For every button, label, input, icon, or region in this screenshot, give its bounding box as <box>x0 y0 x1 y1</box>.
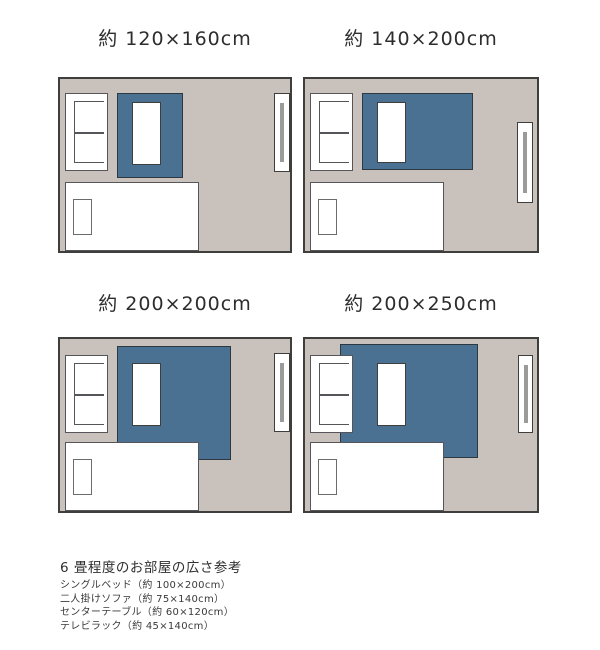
sofa-seat-outline <box>74 101 104 163</box>
legend-list: シングルベッド（約 100×200cm） 二人掛けソファ（約 75×140cm）… <box>60 579 234 633</box>
sofa-seat-divider <box>320 394 349 396</box>
sofa-seat-divider <box>75 394 104 396</box>
tv-rack <box>274 93 290 172</box>
room-floor-140x200 <box>303 77 539 253</box>
diagram-title-120x160: 約 120×160cm <box>58 24 292 51</box>
pillow <box>318 459 337 495</box>
single-bed <box>310 442 444 511</box>
diagram-title-140x200: 約 140×200cm <box>303 24 539 51</box>
tv-rack-bar <box>523 132 527 193</box>
room-floor-200x200 <box>58 337 292 513</box>
legend-item-single-bed: シングルベッド（約 100×200cm） <box>60 579 234 593</box>
diagram-title-200x200: 約 200×200cm <box>58 289 292 316</box>
room-floor-120x160 <box>58 77 292 253</box>
single-bed <box>65 442 199 511</box>
sofa-seat-outline <box>319 363 349 425</box>
pillow <box>73 459 92 495</box>
center-table <box>377 363 406 426</box>
two-seat-sofa <box>65 355 108 433</box>
two-seat-sofa <box>310 93 353 171</box>
single-bed <box>310 182 444 251</box>
tv-rack-bar <box>280 363 284 422</box>
center-table <box>377 102 406 163</box>
pillow <box>73 199 92 235</box>
tv-rack-bar <box>524 365 528 423</box>
rug <box>340 344 478 458</box>
pillow <box>318 199 337 235</box>
diagram-title-200x250: 約 200×250cm <box>303 289 539 316</box>
tv-rack <box>274 353 290 432</box>
rug-size-comparison-figure: 約 120×160cm 約 140×200cm 約 200×200cm 約 20… <box>0 0 600 650</box>
sofa-seat-divider <box>75 132 104 134</box>
center-table <box>132 363 161 426</box>
center-table <box>132 102 161 165</box>
sofa-seat-outline <box>319 101 349 163</box>
tv-rack <box>518 355 533 433</box>
room-floor-200x250 <box>303 337 539 513</box>
sofa-seat-divider <box>320 132 349 134</box>
single-bed <box>65 182 199 251</box>
legend-item-tv-rack: テレビラック（約 45×140cm） <box>60 620 234 634</box>
two-seat-sofa <box>65 93 108 171</box>
tv-rack-bar <box>280 103 284 162</box>
legend-item-center-table: センターテーブル（約 60×120cm） <box>60 606 234 620</box>
legend-item-sofa: 二人掛けソファ（約 75×140cm） <box>60 593 234 607</box>
sofa-seat-outline <box>74 363 104 425</box>
two-seat-sofa <box>310 355 353 433</box>
tv-rack <box>517 122 533 203</box>
legend-heading: 6 畳程度のお部屋の広さ参考 <box>60 556 242 576</box>
